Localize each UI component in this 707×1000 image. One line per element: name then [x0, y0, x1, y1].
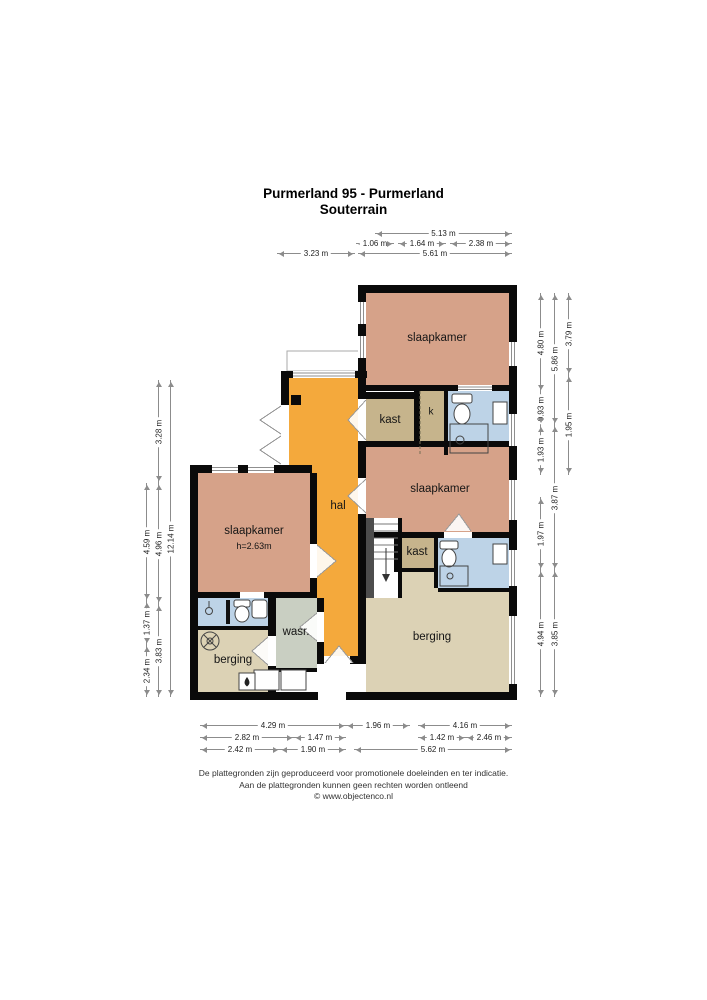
stairs-side-wall	[366, 518, 374, 598]
dimension-bottom: 1.90 m	[280, 749, 346, 750]
sink-icon	[493, 402, 507, 424]
dimension-bottom: 4.16 m	[418, 725, 512, 726]
dimension-label: 4.16 m	[450, 721, 480, 730]
window	[358, 302, 366, 324]
toilet-icon	[452, 394, 472, 424]
dimension-right: 5.86 m	[554, 293, 555, 425]
dimension-label: 1.93 m	[537, 435, 546, 465]
dimension-label: 5.13 m	[428, 229, 458, 238]
sink-icon	[493, 544, 507, 564]
dimension-label: 2.46 m	[474, 733, 504, 742]
sink-icon	[252, 600, 267, 618]
dimension-bottom: 2.42 m	[200, 749, 280, 750]
dimension-top: 2.38 m	[450, 243, 512, 244]
dimension-right: 4.80 m	[540, 293, 541, 392]
dimension-label: 5.62 m	[418, 745, 448, 754]
dimension-label: 4.94 m	[537, 618, 546, 648]
label-slaapkamer-top: slaapkamer	[407, 332, 466, 344]
window	[509, 616, 517, 684]
dimension-bottom: 1.47 m	[294, 737, 346, 738]
dimension-left: 3.83 m	[158, 604, 159, 697]
dimension-left: 12.14 m	[170, 380, 171, 697]
label-berging-right: berging	[413, 631, 451, 643]
dimension-label: 4.80 m	[537, 327, 546, 357]
window	[212, 465, 238, 473]
dimension-label: 1.64 m	[407, 239, 437, 248]
room-hal-lower	[324, 598, 358, 656]
dimension-label: 2.34 m	[143, 656, 152, 686]
dimension-label: 1.37 m	[143, 608, 152, 638]
dimension-label: 1.95 m	[565, 410, 574, 440]
label-k-closet: k	[429, 407, 434, 418]
dimension-left: 1.37 m	[146, 601, 147, 645]
dimension-top: 5.61 m	[358, 253, 512, 254]
label-berging-left: berging	[214, 654, 252, 666]
dimension-label: 2.42 m	[225, 745, 255, 754]
dimension-label: 5.86 m	[551, 344, 560, 374]
dimension-right: 1.95 m	[568, 375, 569, 475]
dimension-top: 5.13 m	[375, 233, 512, 234]
dimension-right: 4.94 m	[540, 570, 541, 697]
boiler-flame-icon	[239, 673, 255, 690]
dimension-label: 4.29 m	[258, 721, 288, 730]
window	[458, 385, 492, 391]
dimension-label: 12.14 m	[167, 521, 176, 556]
dimension-top: 1.06 m	[356, 243, 394, 244]
dimension-label: 1.47 m	[305, 733, 335, 742]
dimension-left: 4.96 m	[158, 483, 159, 604]
window	[509, 342, 517, 366]
dimension-right: 3.87 m	[554, 425, 555, 570]
dimension-label: 1.42 m	[427, 733, 457, 742]
dimension-label: 2.82 m	[232, 733, 262, 742]
dimension-bottom: 1.42 m	[418, 737, 466, 738]
dimension-label: 3.28 m	[155, 416, 164, 446]
dimension-right: 3.79 m	[568, 293, 569, 375]
window	[248, 465, 274, 473]
window	[509, 414, 517, 446]
washer-icon	[281, 670, 306, 690]
dimension-right: 1.93 m	[540, 425, 541, 475]
footer-disclaimer-2: Aan de plattegronden kunnen geen rechten…	[0, 780, 707, 792]
entry-steps	[287, 351, 365, 371]
dimension-label: 1.06 m	[360, 239, 390, 248]
entry-door-leaf	[260, 436, 281, 464]
dimension-bottom: 2.82 m	[200, 737, 294, 738]
window	[509, 550, 517, 586]
dimension-label: 3.85 m	[551, 618, 560, 648]
label-kast-right: kast	[406, 546, 427, 558]
dimension-bottom: 4.29 m	[200, 725, 346, 726]
dimension-bottom: 1.96 m	[346, 725, 410, 726]
footer-disclaimer-1: De plattegronden zijn geproduceerd voor …	[0, 768, 707, 780]
footer: De plattegronden zijn geproduceerd voor …	[0, 768, 707, 803]
washer-icon	[254, 670, 279, 690]
dimension-right: 1.97 m	[540, 497, 541, 570]
window	[293, 371, 355, 378]
dimension-label: 3.23 m	[301, 249, 331, 258]
dimension-label: 1.96 m	[363, 721, 393, 730]
label-wasruimte: wasr.	[283, 626, 310, 638]
dimension-left: 3.28 m	[158, 380, 159, 483]
dimension-left: 2.34 m	[146, 645, 147, 697]
label-slaapkamer-right: slaapkamer	[410, 483, 469, 495]
dimension-label: 3.83 m	[155, 635, 164, 665]
entry-door-leaf	[260, 406, 281, 434]
partition	[226, 600, 230, 624]
dimension-bottom: 2.46 m	[466, 737, 512, 738]
dimension-left: 4.59 m	[146, 483, 147, 601]
dimension-label: 1.97 m	[537, 518, 546, 548]
dimension-label: 0.93 m	[537, 393, 546, 423]
window	[509, 480, 517, 520]
dimension-top: 3.23 m	[277, 253, 355, 254]
window	[358, 336, 366, 358]
footer-copyright: © www.objectenco.nl	[0, 791, 707, 803]
toilet-icon	[234, 600, 250, 622]
dimension-label: 3.87 m	[551, 482, 560, 512]
label-height-note: h=2.63m	[236, 541, 271, 551]
dimension-label: 1.90 m	[298, 745, 328, 754]
dimension-label: 4.96 m	[155, 528, 164, 558]
dimension-label: 5.61 m	[420, 249, 450, 258]
dimension-right: 0.93 m	[540, 392, 541, 425]
dimension-right: 3.85 m	[554, 570, 555, 697]
label-kast-top: kast	[379, 414, 400, 426]
dimension-label: 4.59 m	[143, 527, 152, 557]
pillar	[291, 395, 301, 405]
label-hal: hal	[330, 500, 345, 512]
dimension-top: 1.64 m	[398, 243, 446, 244]
label-slaapkamer-left: slaapkamer	[224, 525, 283, 537]
dimension-bottom: 5.62 m	[354, 749, 512, 750]
dimension-label: 3.79 m	[565, 319, 574, 349]
dimension-label: 2.38 m	[466, 239, 496, 248]
floorplan-graphic	[0, 0, 707, 1000]
floorplan-page: Purmerland 95 - Purmerland Souterrain	[0, 0, 707, 1000]
toilet-icon	[440, 541, 458, 567]
